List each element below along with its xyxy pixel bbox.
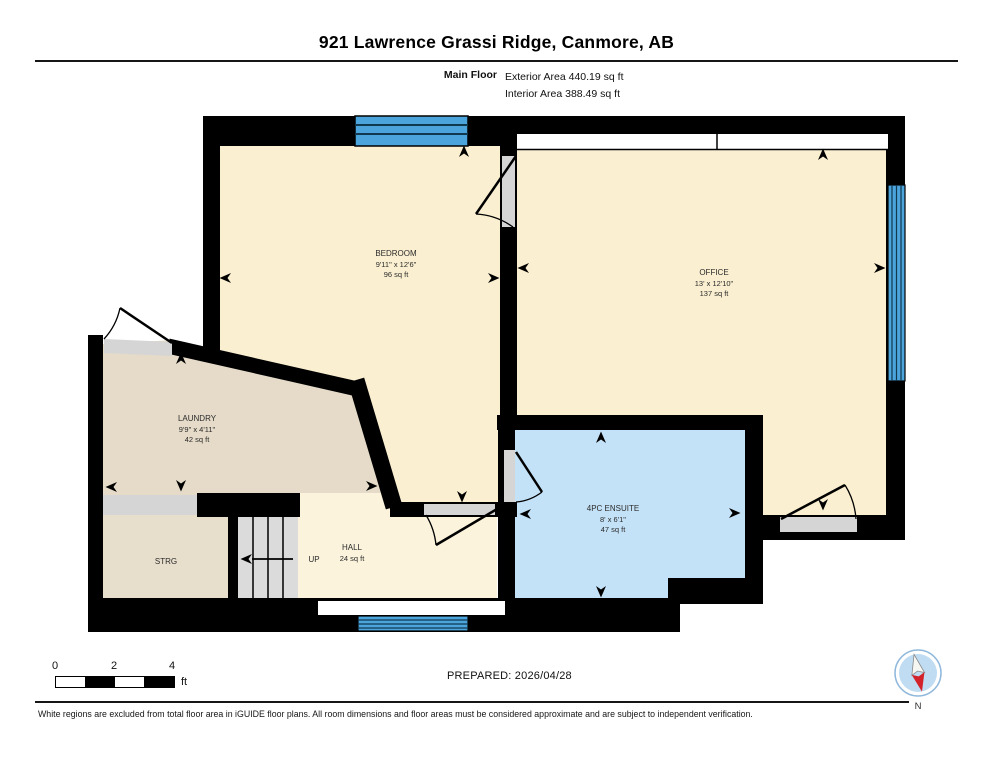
hall-bottom-band bbox=[318, 601, 505, 615]
office-dims: 13' x 12'10" bbox=[695, 279, 734, 288]
ensuite-floor bbox=[515, 430, 745, 600]
floorplan-drawing: BEDROOM 9'11" x 12'6" 96 sq ft OFFICE 13… bbox=[0, 0, 993, 768]
scale-segment bbox=[144, 677, 174, 687]
bedroom-area: 96 sq ft bbox=[384, 270, 410, 279]
prepared-date: PREPARED: 2026/04/28 bbox=[447, 670, 572, 682]
floorplan-page: 921 Lawrence Grassi Ridge, Canmore, AB M… bbox=[0, 0, 993, 768]
ensuite-label: 4PC ENSUITE bbox=[587, 504, 639, 513]
bottom-window bbox=[358, 616, 468, 631]
scale-bar bbox=[55, 676, 175, 688]
scale-segment bbox=[115, 677, 144, 687]
hall-door-opening bbox=[424, 504, 495, 515]
bedroom-dims: 9'11" x 12'6" bbox=[376, 260, 417, 269]
disclaimer-text: White regions are excluded from total fl… bbox=[38, 709, 968, 719]
scale-unit: ft bbox=[181, 676, 187, 688]
compass-icon: N bbox=[892, 647, 944, 715]
stairs-up-label: UP bbox=[308, 555, 319, 564]
hall-area: 24 sq ft bbox=[340, 554, 366, 563]
laundry-area: 42 sq ft bbox=[185, 435, 211, 444]
laundry-dims: 9'9" x 4'11" bbox=[179, 425, 216, 434]
footer-divider bbox=[35, 701, 909, 703]
scale-tick-2: 2 bbox=[107, 660, 121, 672]
laundry-door bbox=[104, 308, 172, 343]
laundry-label: LAUNDRY bbox=[178, 414, 217, 423]
laundry-storage-opening bbox=[103, 495, 197, 515]
bedroom-label: BEDROOM bbox=[375, 249, 417, 258]
office-label: OFFICE bbox=[699, 268, 728, 277]
office-door-opening bbox=[780, 517, 857, 532]
scale-segment bbox=[56, 677, 85, 687]
office-area: 137 sq ft bbox=[700, 289, 730, 298]
scale-tick-0: 0 bbox=[48, 660, 62, 672]
ensuite-dims: 8' x 6'1" bbox=[600, 515, 626, 524]
office-top-band bbox=[517, 134, 888, 150]
ensuite-area: 47 sq ft bbox=[601, 525, 627, 534]
right-window bbox=[888, 185, 905, 381]
top-window bbox=[355, 116, 468, 146]
hall-label: HALL bbox=[342, 543, 363, 552]
scale-segment bbox=[85, 677, 115, 687]
scale-tick-4: 4 bbox=[165, 660, 179, 672]
storage-label: STRG bbox=[155, 557, 177, 566]
ensuite-door-opening bbox=[504, 450, 515, 502]
